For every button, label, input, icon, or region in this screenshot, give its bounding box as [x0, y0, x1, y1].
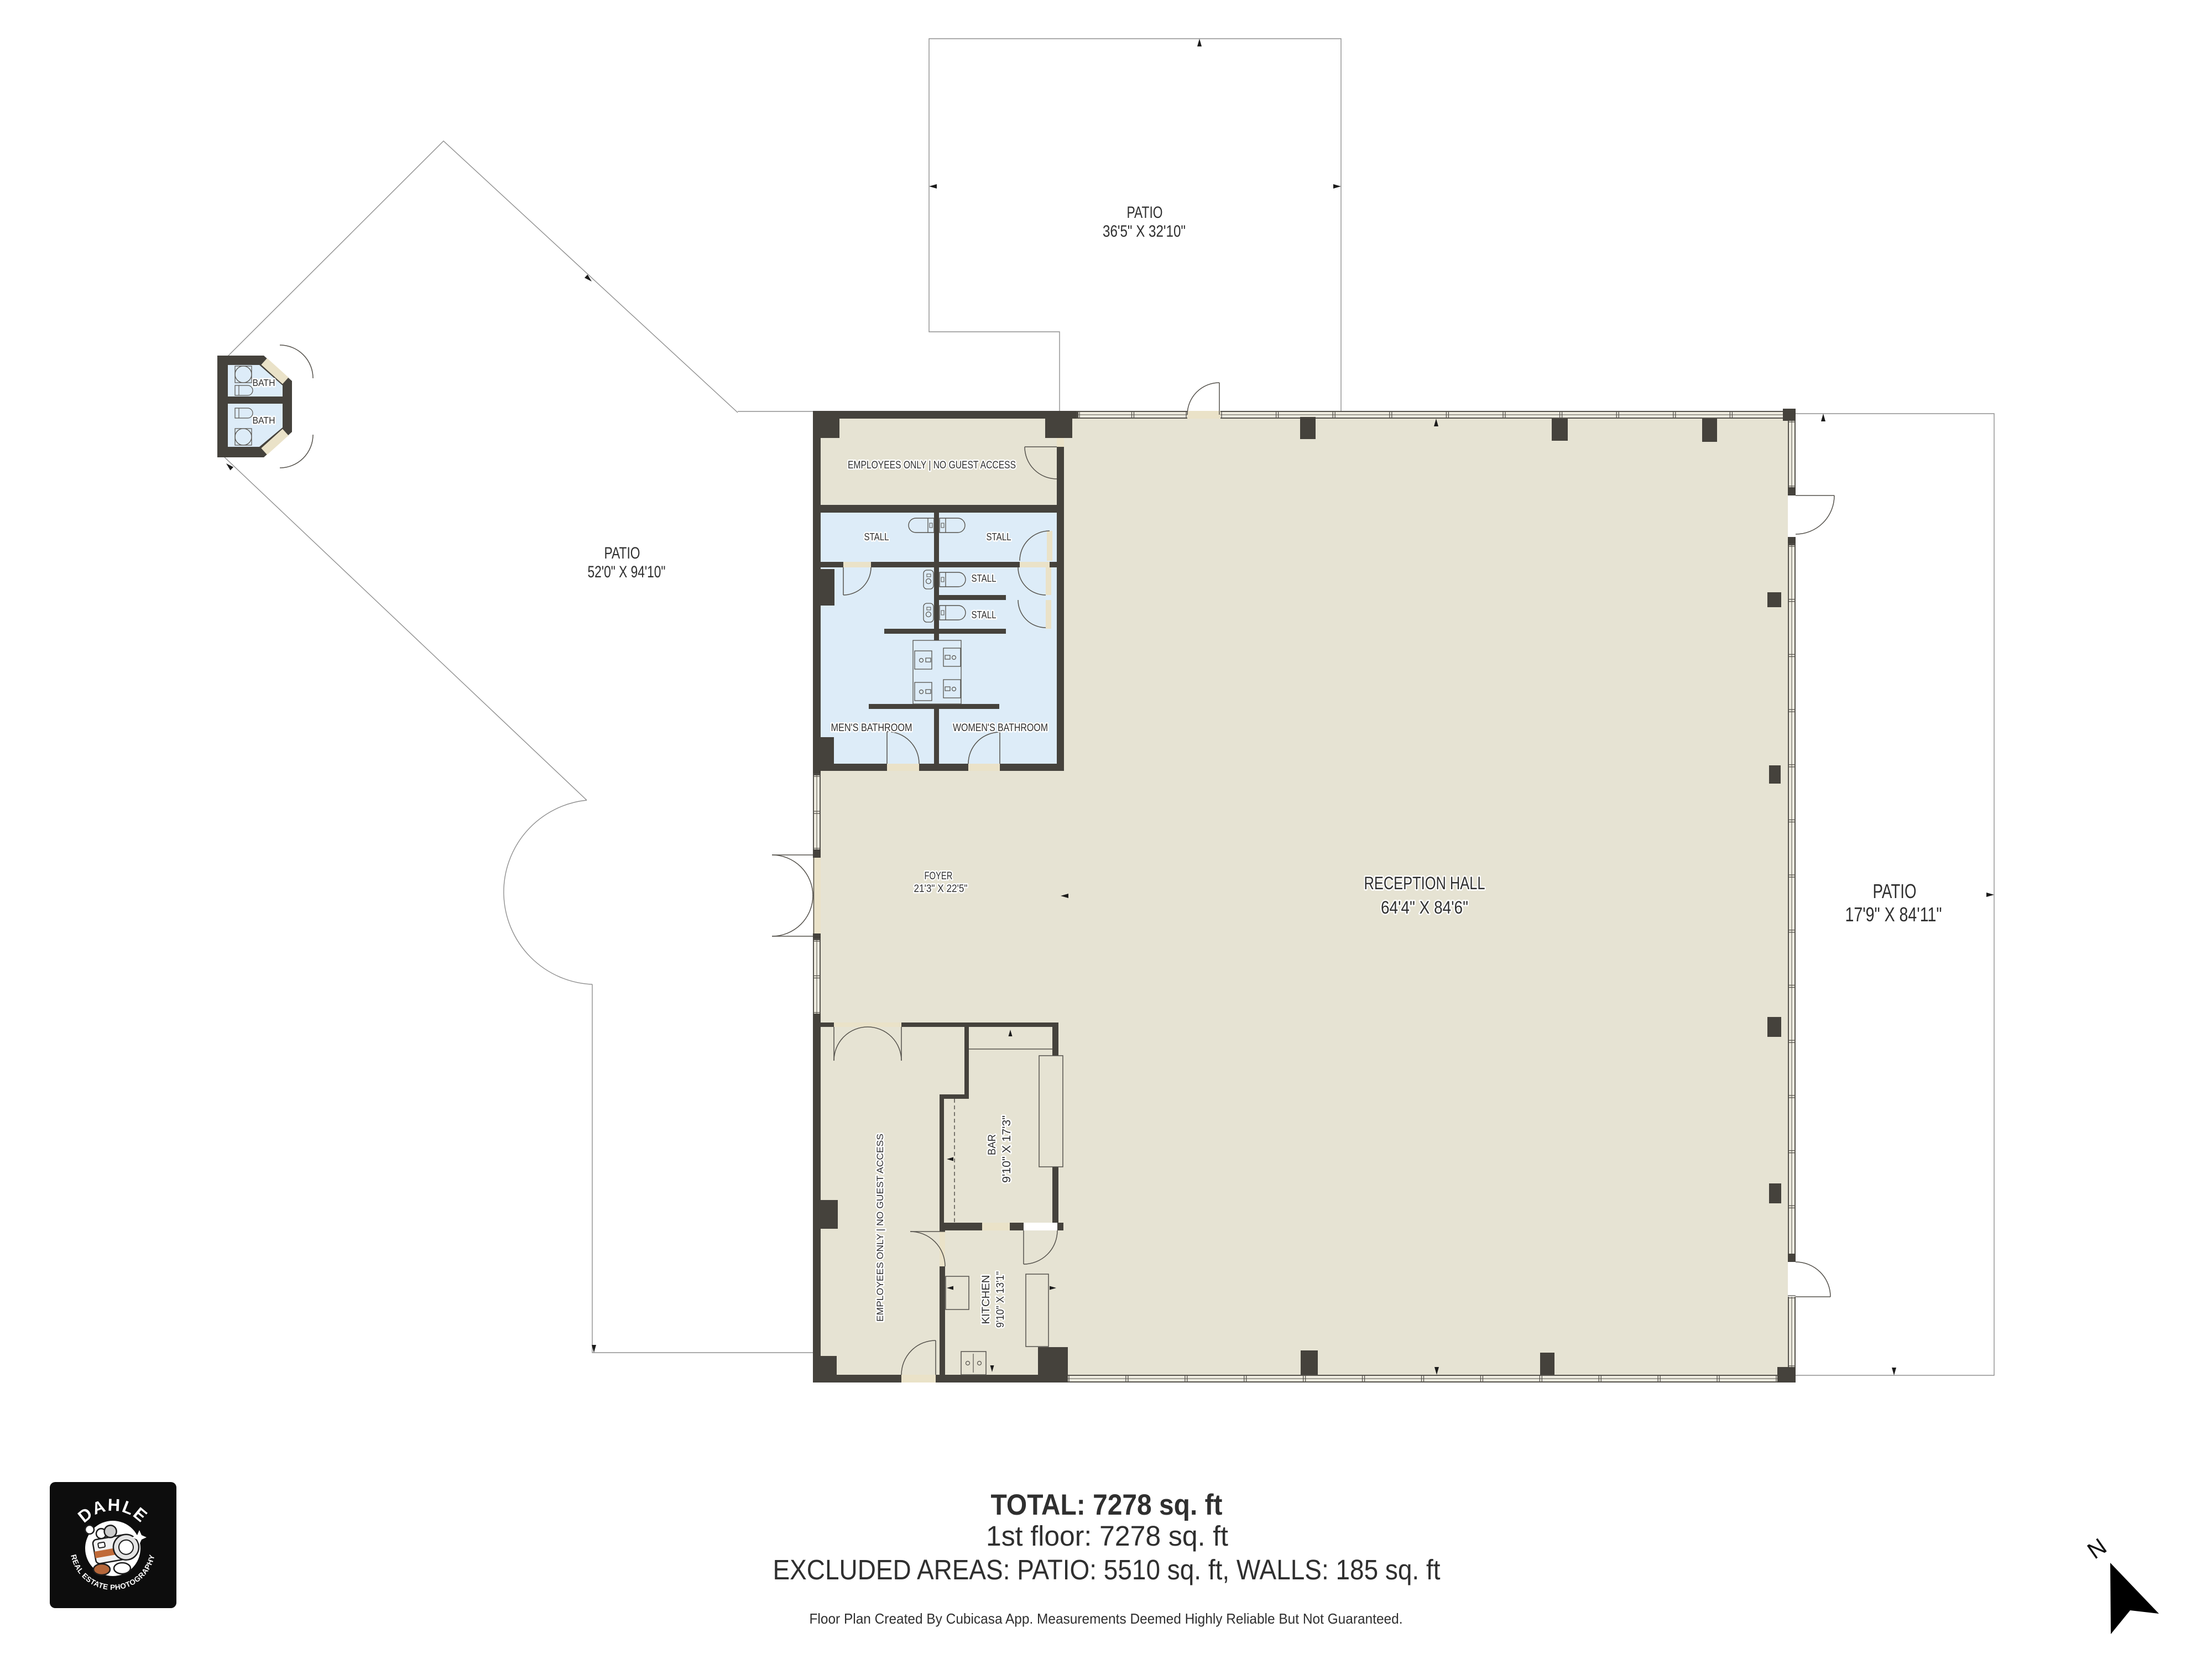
svg-text:9'10" X 17'3": 9'10" X 17'3" [1000, 1115, 1013, 1183]
svg-text:EXCLUDED AREAS: PATIO: 5510 sq: EXCLUDED AREAS: PATIO: 5510 sq. ft, WALL… [773, 1554, 1441, 1585]
svg-text:36'5" X 32'10": 36'5" X 32'10" [1103, 222, 1186, 241]
svg-text:PATIO: PATIO [604, 544, 640, 562]
svg-text:KITCHEN: KITCHEN [980, 1275, 992, 1324]
svg-text:21'3" X 22'5": 21'3" X 22'5" [914, 883, 968, 895]
svg-text:PATIO: PATIO [1873, 880, 1917, 902]
svg-text:MEN'S BATHROOM: MEN'S BATHROOM [831, 722, 912, 734]
svg-text:64'4" X 84'6": 64'4" X 84'6" [1381, 898, 1468, 917]
svg-text:EMPLOYEES ONLY | NO GUEST ACCE: EMPLOYEES ONLY | NO GUEST ACCESS [875, 1134, 885, 1322]
svg-text:9'10" X 13'1": 9'10" X 13'1" [995, 1271, 1006, 1328]
svg-text:PATIO: PATIO [1127, 204, 1163, 222]
svg-text:BAR: BAR [987, 1134, 998, 1155]
svg-text:WOMEN'S BATHROOM: WOMEN'S BATHROOM [953, 722, 1048, 734]
svg-text:STALL: STALL [972, 609, 997, 620]
svg-text:EMPLOYEES ONLY | NO GUEST ACCE: EMPLOYEES ONLY | NO GUEST ACCESS [848, 459, 1016, 471]
svg-text:17'9" X 84'11": 17'9" X 84'11" [1845, 903, 1942, 926]
svg-text:RECEPTION HALL: RECEPTION HALL [1364, 873, 1485, 893]
svg-text:1st floor: 7278 sq. ft: 1st floor: 7278 sq. ft [986, 1520, 1228, 1552]
svg-text:TOTAL: 7278 sq. ft: TOTAL: 7278 sq. ft [991, 1489, 1223, 1521]
svg-text:STALL: STALL [972, 572, 997, 584]
svg-text:FOYER: FOYER [925, 870, 953, 882]
svg-text:STALL: STALL [987, 531, 1011, 542]
svg-text:52'0" X 94'10": 52'0" X 94'10" [588, 563, 666, 581]
svg-text:Floor Plan Created By Cubicasa: Floor Plan Created By Cubicasa App. Meas… [810, 1610, 1403, 1627]
svg-text:BATH: BATH [253, 415, 275, 426]
svg-text:BATH: BATH [253, 377, 275, 388]
svg-text:STALL: STALL [864, 531, 889, 542]
